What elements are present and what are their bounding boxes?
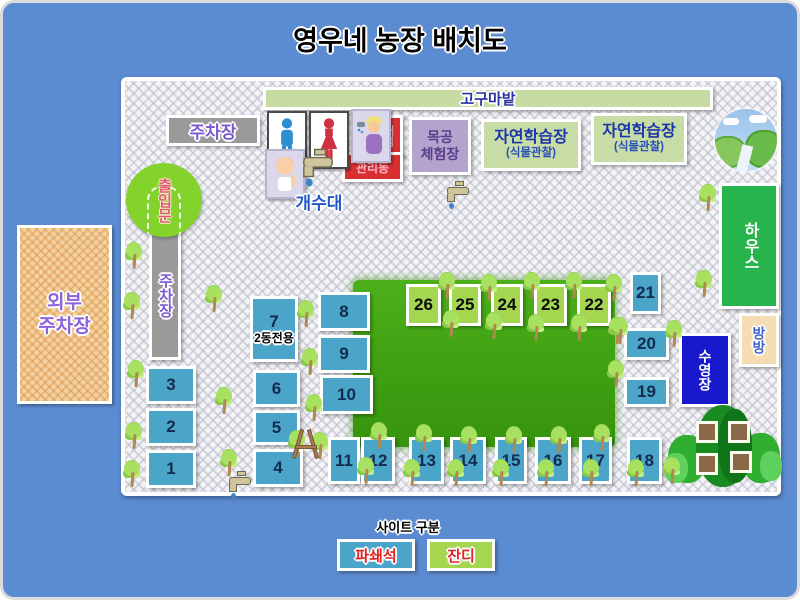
woodwork-label-line2: 체험장 xyxy=(421,146,460,164)
bounce-house: 방방 xyxy=(739,313,779,367)
legend-grass: 잔디 xyxy=(427,539,495,571)
greenhouse: 하우스 xyxy=(719,183,779,309)
site-12: 12 xyxy=(361,437,395,484)
sink-label: 개수대 xyxy=(271,189,367,214)
entrance-label: 출입문 xyxy=(157,178,172,223)
site-15: 15 xyxy=(495,437,527,484)
site-9: 9 xyxy=(318,335,370,373)
legend-crushed-stone-label: 파쇄석 xyxy=(355,545,396,566)
site-20: 20 xyxy=(624,328,669,360)
nature-learning-area-2: 자연학습장 (식물관찰) xyxy=(591,113,687,165)
top-parking-lot: 주차장 xyxy=(166,115,260,146)
woodwork-label-line1: 목공 xyxy=(427,129,453,147)
farm-map-screenshot: 영우네 농장 배치도 외부 주차장 고구마밭 주차장 주차장 출입문 xyxy=(0,0,800,600)
landscape-icon xyxy=(715,109,777,171)
site-25: 25 xyxy=(449,284,481,326)
nature-subtitle: (식물관찰) xyxy=(506,147,556,161)
a-frame-icon xyxy=(289,427,323,461)
site-13: 13 xyxy=(409,437,444,484)
sweet-potato-field: 고구마밭 xyxy=(263,87,713,110)
outside-parking-label-line1: 외부 xyxy=(47,291,82,315)
site-11: 11 xyxy=(328,437,360,484)
site-7-note: 2동전용 xyxy=(254,332,294,345)
treehouse-icon xyxy=(666,405,780,493)
legend-title: 사이트 구분 xyxy=(348,517,468,536)
outside-parking-area: 외부 주차장 xyxy=(17,225,112,404)
faucet-icon xyxy=(225,467,255,499)
faucet-icon xyxy=(443,177,473,209)
site-7-number: 7 xyxy=(269,312,278,332)
nature-learning-area-1: 자연학습장 (식물관찰) xyxy=(481,119,581,171)
site-16: 16 xyxy=(535,437,571,484)
site-19: 19 xyxy=(624,377,669,407)
nature-title: 자연학습장 xyxy=(494,129,568,147)
entrance-area: 출입문 xyxy=(126,163,202,237)
legend-crushed-stone: 파쇄석 xyxy=(337,539,415,571)
site-23: 23 xyxy=(534,284,567,326)
left-parking-label: 주차장 xyxy=(158,273,173,318)
site-10: 10 xyxy=(320,375,373,414)
site-14: 14 xyxy=(450,437,486,484)
nature-subtitle: (식물관찰) xyxy=(614,141,664,155)
site-7: 7 2동전용 xyxy=(250,296,298,362)
site-17: 17 xyxy=(579,437,612,484)
sweet-potato-field-label: 고구마밭 xyxy=(460,88,515,109)
outside-parking-label-line2: 주차장 xyxy=(38,315,90,339)
page-title: 영우네 농장 배치도 xyxy=(3,19,797,58)
legend-grass-label: 잔디 xyxy=(447,545,475,566)
shower-person-icon xyxy=(355,114,387,158)
nature-title: 자연학습장 xyxy=(602,123,676,141)
top-parking-label: 주차장 xyxy=(190,118,237,143)
swimming-pool: 수영장 xyxy=(679,333,731,407)
site-24: 24 xyxy=(491,284,523,326)
site-22: 22 xyxy=(577,284,611,326)
site-26: 26 xyxy=(406,284,441,326)
greenhouse-label: 하우스 xyxy=(741,222,757,270)
shower-box xyxy=(351,109,391,163)
left-parking-lot: 주차장 xyxy=(149,230,181,360)
woodwork-area: 목공 체험장 xyxy=(409,117,471,175)
faucet-icon xyxy=(298,143,339,186)
pool-label: 수영장 xyxy=(698,349,712,391)
site-21: 21 xyxy=(630,272,661,314)
site-2: 2 xyxy=(146,408,196,446)
site-3: 3 xyxy=(146,366,196,404)
site-18: 18 xyxy=(627,437,662,484)
site-6: 6 xyxy=(253,370,300,407)
lawn-area xyxy=(353,280,615,447)
site-1: 1 xyxy=(146,450,196,488)
site-8: 8 xyxy=(318,292,370,331)
bounce-label: 방방 xyxy=(752,326,766,354)
